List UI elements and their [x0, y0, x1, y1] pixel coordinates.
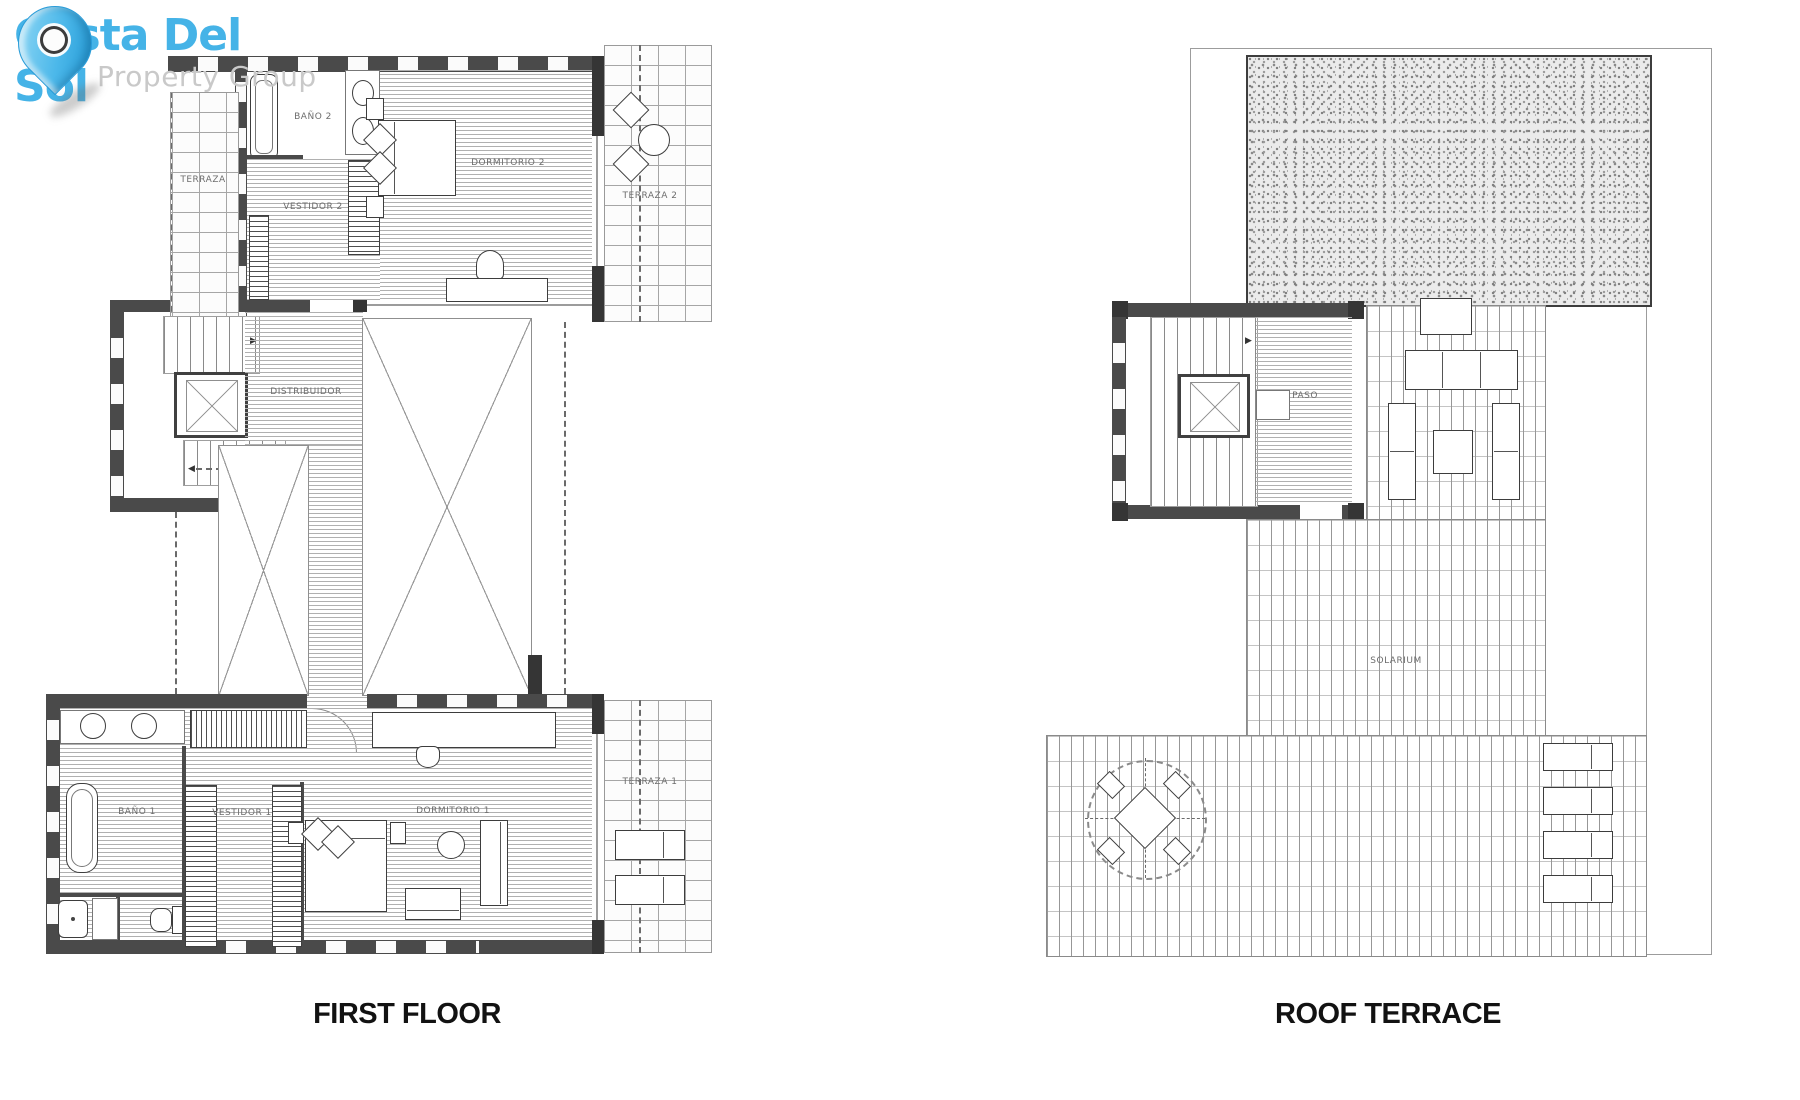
- roof-sofa-top: [1405, 350, 1518, 390]
- logo: Costa Del Sol Property Group: [0, 0, 320, 130]
- roof-core-left-window-wall: [1112, 317, 1126, 505]
- roof-outline-top: [1190, 48, 1712, 49]
- roof-sofa-top-div-b: [1480, 352, 1481, 388]
- roof-lounger-3: [1543, 831, 1613, 859]
- roof-lounger-2-line: [1591, 789, 1592, 813]
- roof-lounger-2: [1543, 787, 1613, 815]
- roof-coffee-table: [1433, 430, 1473, 474]
- roof-lounger-4: [1543, 875, 1613, 903]
- roof-lounger-1-line: [1591, 745, 1592, 769]
- roof-outline-left-upper: [1190, 48, 1191, 303]
- map-pin-icon: [6, 0, 126, 130]
- roof-core-top-wall: [1112, 303, 1364, 317]
- pin-ring: [40, 26, 68, 54]
- roof-lounger-4-line: [1591, 877, 1592, 901]
- roof-sofa-top-div-a: [1442, 352, 1443, 388]
- roof-planter: [1420, 298, 1472, 335]
- roof-lounger-1: [1543, 743, 1613, 771]
- roof-core-door-gap: [1300, 505, 1342, 519]
- gravel-roof: [1246, 55, 1652, 307]
- solarium-label: SOLARIUM: [1370, 656, 1421, 666]
- roof-sofa-right-div: [1494, 451, 1518, 452]
- roof-terrace-plan: ▶ PASO SOLARIUM: [0, 0, 1800, 1100]
- roof-stairs-arrow: ▶: [1245, 336, 1252, 345]
- roof-lounger-3-line: [1591, 833, 1592, 857]
- solarium-strip-tiles: [1246, 519, 1546, 737]
- paso-label: PASO: [1292, 391, 1318, 401]
- roof-sofa-left-div: [1390, 451, 1414, 452]
- paso-step: [1256, 390, 1290, 420]
- roof-terrace-title: ROOF TERRACE: [1275, 998, 1501, 1031]
- roof-core-bottom-cap-left: [1112, 503, 1128, 521]
- roof-elevator-cab: [1190, 382, 1240, 432]
- logo-subtitle-text: Property Group: [97, 60, 317, 93]
- roof-outline-right: [1711, 48, 1712, 955]
- floor-plan-sheet: Costa Del Sol Property Group TERRAZA BAÑ…: [0, 0, 1800, 1100]
